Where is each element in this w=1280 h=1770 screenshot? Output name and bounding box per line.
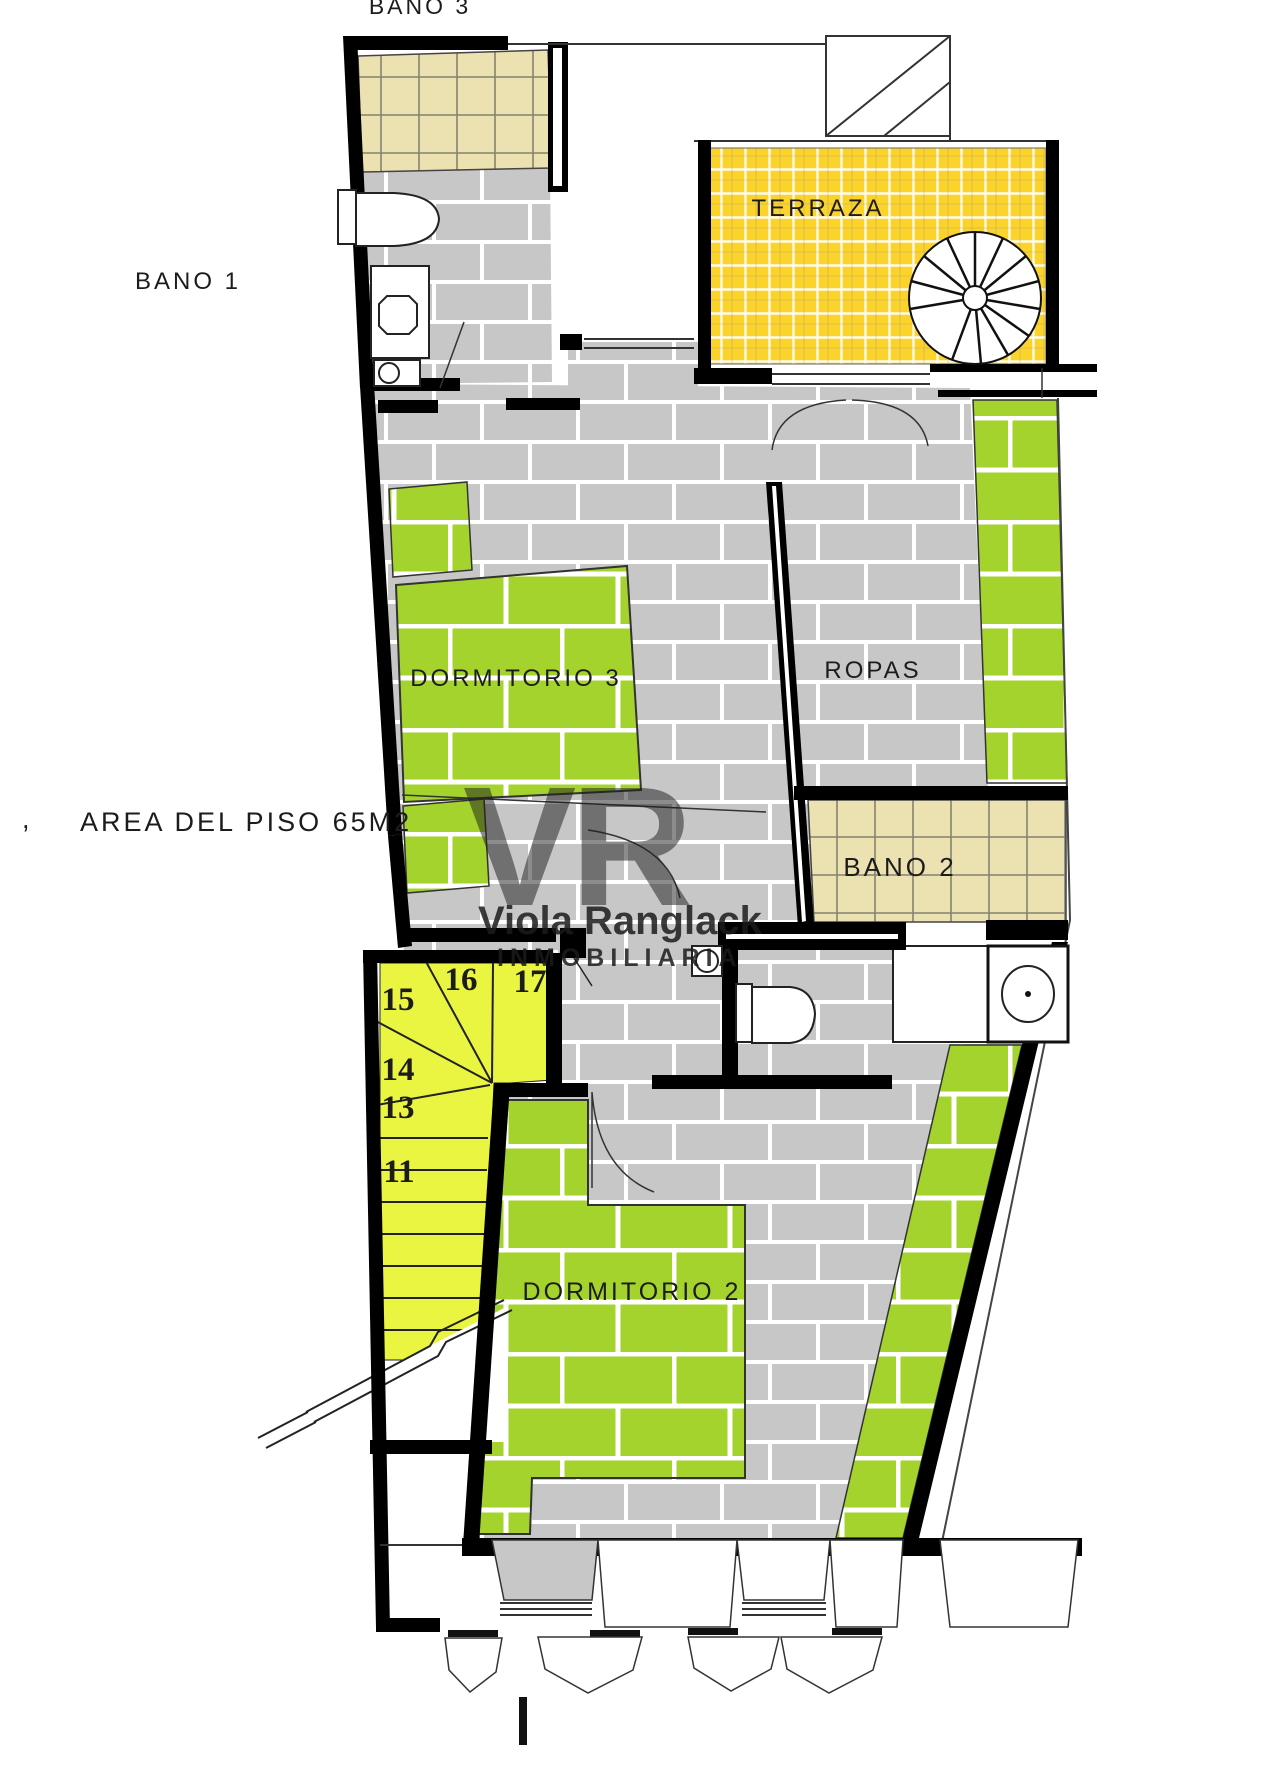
stair-num-15: 15 [382,982,415,1018]
shutters [445,1637,882,1693]
wall-terraza-right [1046,140,1059,368]
bay-1 [492,1540,598,1600]
w-core1 [553,48,562,186]
wall-bano2-bottom-right [986,920,1068,940]
shutter-4 [781,1637,882,1693]
spiral-staircase [909,232,1041,364]
sink-bano1 [371,266,429,358]
wall-bano3-top [344,36,508,50]
shutter-3 [688,1637,779,1691]
wall-mainroom-top1 [378,400,438,413]
label-bano3: BANO 3 [369,0,471,19]
green-patch-entry [389,482,472,577]
label-bano2: BANO 2 [843,852,956,882]
toilet-bano1 [338,190,439,246]
washbasin-lower [988,946,1068,1042]
bay-4 [830,1540,903,1627]
wall-terraza-bottom [694,368,772,384]
wall-corridor [560,334,582,350]
label-area: AREA DEL PISO 65M2 [80,807,412,837]
wall-bottom-left-piece [376,1618,440,1632]
bay-3-window [742,1603,826,1615]
bay-2 [598,1540,737,1627]
section-mark [519,1697,527,1745]
shutter-sills [448,1628,882,1637]
wall-window-east1 [930,364,1097,372]
label-dormitorio3: DORMITORIO 3 [410,665,622,692]
shutter-1 [445,1638,502,1692]
wall-stair-bottom [370,1440,492,1454]
wall-stair-right [546,953,562,1085]
bay-1-window [500,1603,592,1615]
wall-bano2-top [794,786,1068,800]
closet-strip-upper [973,400,1067,783]
wall-dorm2-top [652,1075,892,1089]
bay-3 [737,1540,830,1600]
stair-num-13: 13 [382,1090,415,1126]
shutter-2 [538,1637,642,1693]
wall-mainroom-top2 [506,398,580,410]
floor-plan-drawing: BANO 3 BANO 1 TERRAZA DORMITORIO 3 ROPAS… [0,0,1280,1770]
threshold-ropas-door [772,374,930,384]
bidet-bano1 [374,360,420,386]
roof-corner-box [826,36,950,140]
tiles-bano3 [358,50,552,172]
line-top-thin [508,44,1058,141]
stair-num-16: 16 [445,962,478,998]
label-area-comma: , [22,804,33,834]
toilet-lower [736,984,815,1043]
bay-5 [940,1540,1078,1627]
stair-num-11: 11 [383,1154,414,1190]
label-dormitorio2: DORMITORIO 2 [523,1278,742,1306]
label-terraza: TERRAZA [751,195,884,222]
label-ropas: ROPAS [824,657,921,684]
wall-window-east2 [938,390,1097,397]
wall-terraza-left [698,140,711,368]
stair-num-14: 14 [382,1052,415,1088]
window-bays [445,1540,1078,1745]
label-bano1: BANO 1 [135,268,241,295]
watermark-name: Viola Ranglack [478,899,763,943]
watermark-subtitle: INMOBILIARIA [497,944,743,972]
floor-plan-page: BANO 3 BANO 1 TERRAZA DORMITORIO 3 ROPAS… [0,0,1280,1770]
